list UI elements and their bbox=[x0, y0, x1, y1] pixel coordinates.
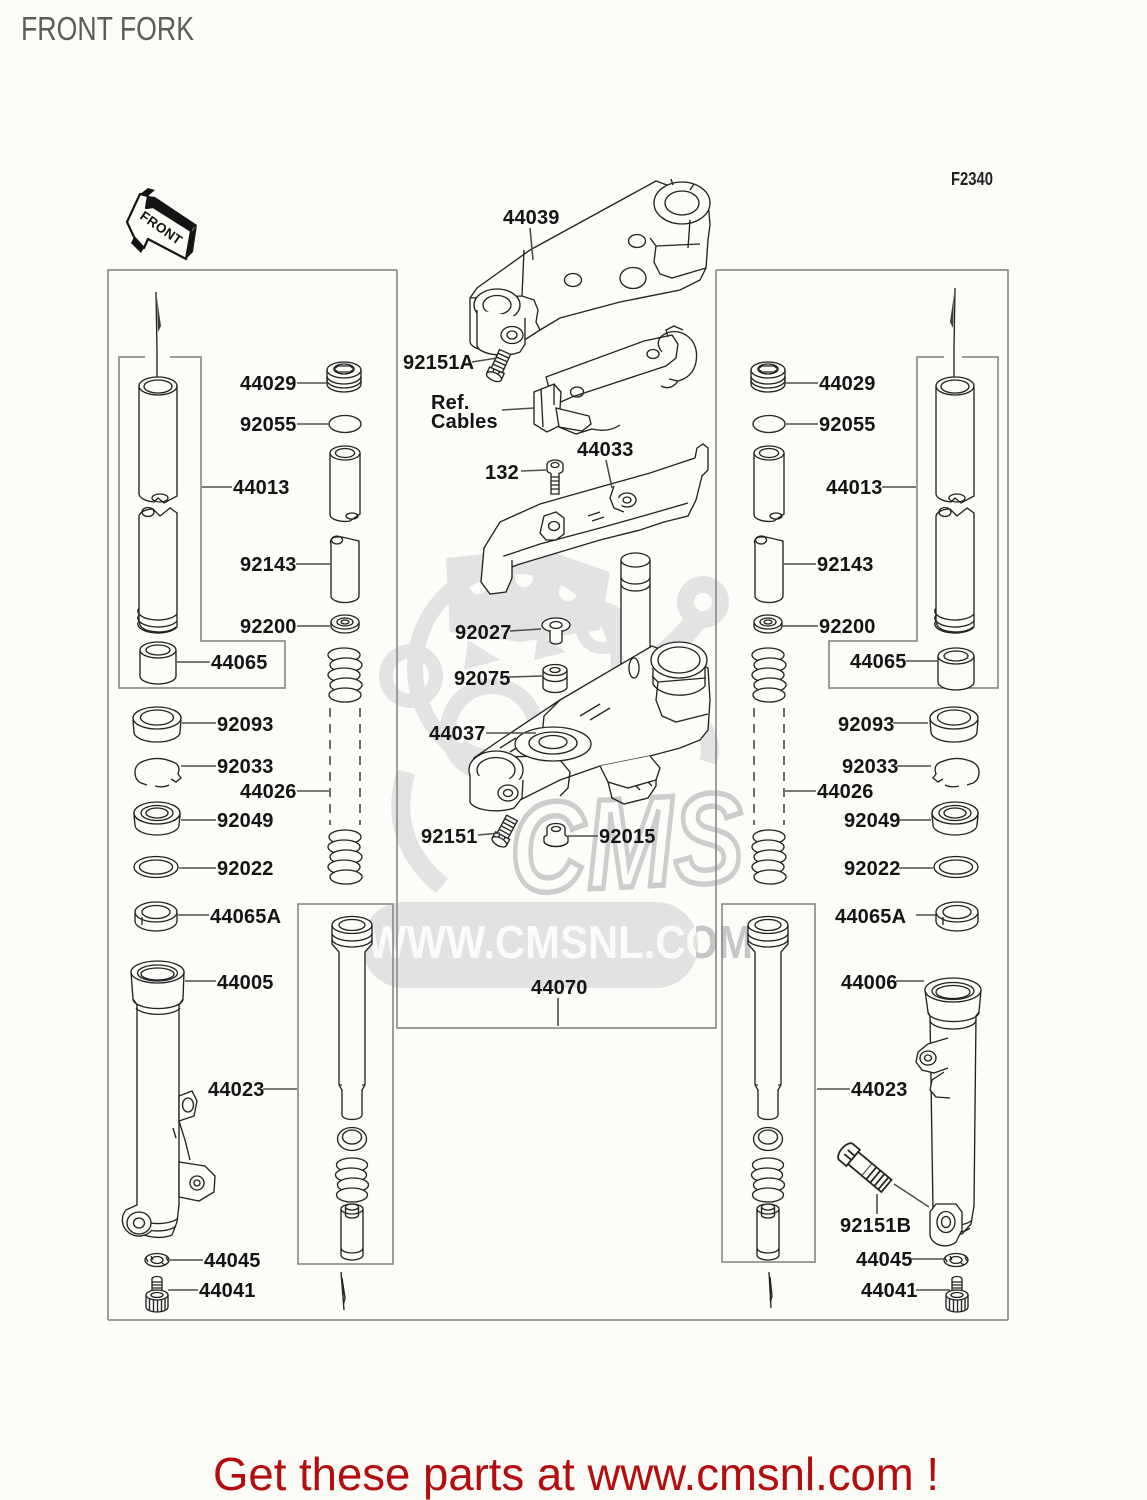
svg-text:44026: 44026 bbox=[240, 781, 297, 803]
svg-text:92049: 92049 bbox=[844, 810, 901, 832]
svg-text:92049: 92049 bbox=[217, 810, 274, 832]
svg-text:92151A: 92151A bbox=[403, 352, 474, 374]
svg-text:92022: 92022 bbox=[844, 858, 901, 880]
svg-text:44070: 44070 bbox=[531, 977, 588, 999]
svg-text:92022: 92022 bbox=[217, 858, 274, 880]
svg-text:92143: 92143 bbox=[240, 554, 297, 576]
svg-text:44045: 44045 bbox=[204, 1250, 261, 1272]
svg-text:92055: 92055 bbox=[240, 414, 297, 436]
svg-text:44065: 44065 bbox=[850, 651, 907, 673]
svg-text:44029: 44029 bbox=[819, 373, 876, 395]
svg-text:92151: 92151 bbox=[421, 826, 478, 848]
svg-text:44026: 44026 bbox=[817, 781, 874, 803]
svg-text:92055: 92055 bbox=[819, 414, 876, 436]
svg-text:92075: 92075 bbox=[454, 668, 511, 690]
svg-text:FRONT FORK: FRONT FORK bbox=[21, 10, 194, 47]
svg-text:44065: 44065 bbox=[211, 652, 268, 674]
svg-text:44033: 44033 bbox=[577, 439, 634, 461]
svg-text:44005: 44005 bbox=[217, 972, 274, 994]
svg-text:44045: 44045 bbox=[856, 1249, 913, 1271]
svg-text:92143: 92143 bbox=[817, 554, 874, 576]
svg-text:92200: 92200 bbox=[240, 616, 297, 638]
svg-text:132: 132 bbox=[485, 462, 519, 484]
svg-text:44013: 44013 bbox=[233, 477, 290, 499]
svg-text:92033: 92033 bbox=[842, 756, 899, 778]
svg-text:44006: 44006 bbox=[841, 972, 898, 994]
svg-text:F2340: F2340 bbox=[951, 169, 993, 189]
svg-text:44041: 44041 bbox=[861, 1280, 918, 1302]
svg-text:92033: 92033 bbox=[217, 756, 274, 778]
svg-text:92093: 92093 bbox=[217, 714, 274, 736]
svg-text:Get these parts at www.cmsnl.c: Get these parts at www.cmsnl.com ! bbox=[213, 1448, 939, 1500]
svg-text:92151B: 92151B bbox=[840, 1215, 911, 1237]
svg-text:44065A: 44065A bbox=[210, 906, 281, 928]
svg-text:WWW.CMSNL.COM: WWW.CMSNL.COM bbox=[367, 916, 753, 968]
svg-text:92027: 92027 bbox=[455, 622, 512, 644]
svg-text:Cables: Cables bbox=[431, 411, 498, 433]
svg-text:92200: 92200 bbox=[819, 616, 876, 638]
svg-text:92093: 92093 bbox=[838, 714, 895, 736]
svg-text:44037: 44037 bbox=[429, 723, 486, 745]
svg-text:44065A: 44065A bbox=[835, 906, 906, 928]
svg-text:44039: 44039 bbox=[503, 207, 560, 229]
svg-text:92015: 92015 bbox=[599, 826, 656, 848]
svg-text:44023: 44023 bbox=[851, 1079, 908, 1101]
svg-text:44023: 44023 bbox=[208, 1079, 265, 1101]
svg-text:44041: 44041 bbox=[199, 1280, 256, 1302]
svg-text:44013: 44013 bbox=[826, 477, 883, 499]
svg-text:44029: 44029 bbox=[240, 373, 297, 395]
